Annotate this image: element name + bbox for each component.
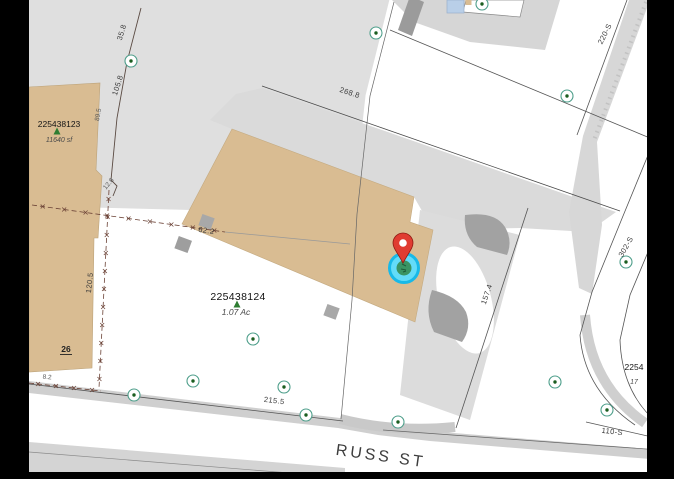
survey-point-marker: [125, 55, 137, 67]
survey-point-marker: [601, 404, 613, 416]
survey-point-marker: [278, 381, 290, 393]
map-label-11640-sf: 11640 sf: [46, 137, 73, 144]
map-label-2254: 2254: [625, 362, 644, 372]
highlight-parcel-glyph: [397, 261, 412, 276]
survey-point-marker: [300, 409, 312, 421]
parcel-map-canvas[interactable]: 62.235.8105.889.512.8120.5268.8215.5157.…: [0, 0, 674, 479]
letterbox-bottom: [0, 472, 674, 479]
map-label-225438123: 225438123: [38, 119, 81, 129]
letterbox-left: [0, 0, 29, 479]
map-label-225438124: 225438124: [210, 291, 265, 303]
building-top-tan-sliver: [466, 0, 472, 5]
survey-point-marker: [392, 416, 404, 428]
map-label-17: 17: [630, 379, 639, 386]
survey-point-marker: [549, 376, 561, 388]
map-label-8-2: 8.2: [42, 374, 52, 382]
letterbox-right: [647, 0, 674, 479]
map-label-26: 26: [61, 344, 71, 354]
map-label-1-07-ac: 1.07 Ac: [222, 307, 251, 317]
survey-point-marker: [187, 375, 199, 387]
survey-point-marker: [476, 0, 488, 10]
map-viewport[interactable]: 62.235.8105.889.512.8120.5268.8215.5157.…: [0, 0, 674, 479]
pin-center-hole: [399, 239, 407, 247]
building-top-blue: [447, 0, 464, 13]
survey-point-marker: [247, 333, 259, 345]
survey-point-marker: [128, 389, 140, 401]
survey-point-marker: [561, 90, 573, 102]
survey-point-marker: [370, 27, 382, 39]
